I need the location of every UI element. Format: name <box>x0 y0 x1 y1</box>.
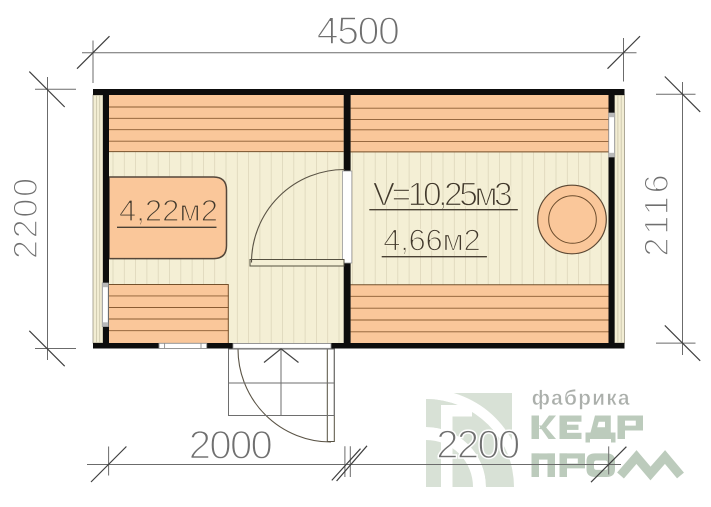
svg-text:2116: 2116 <box>638 175 676 257</box>
svg-text:2000: 2000 <box>189 424 273 468</box>
svg-text:фабрика: фабрика <box>532 387 634 410</box>
svg-text:4,22м2: 4,22м2 <box>119 193 218 228</box>
svg-text:2200: 2200 <box>436 423 520 467</box>
svg-text:4,66м2: 4,66м2 <box>383 222 481 257</box>
svg-text:2200: 2200 <box>7 178 45 259</box>
svg-text:4500: 4500 <box>317 10 400 53</box>
svg-text:V=10,25м3: V=10,25м3 <box>373 177 513 214</box>
